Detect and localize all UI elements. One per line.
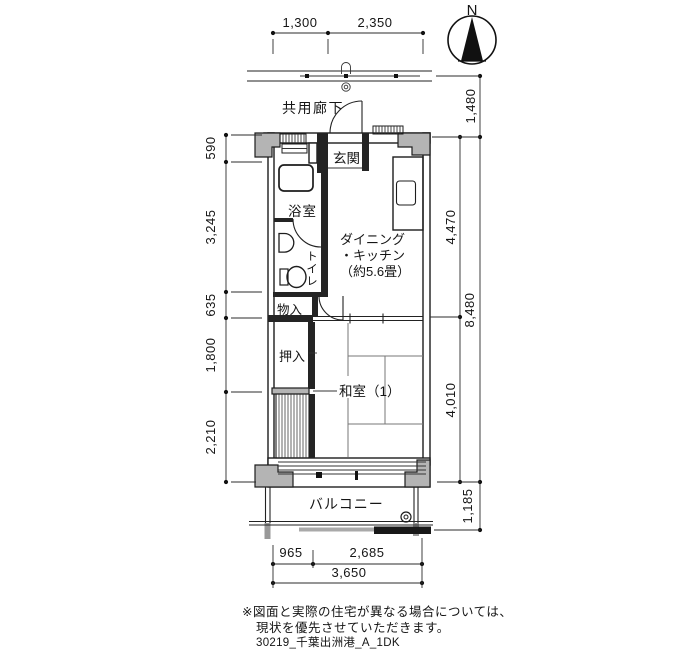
dim-top-2: 2,350 bbox=[345, 15, 405, 31]
dim-left-1: 590 bbox=[203, 118, 219, 178]
dim-right-5: 1,185 bbox=[460, 476, 476, 536]
dim-bottom-2: 2,685 bbox=[337, 545, 397, 561]
room-label-storage: 物入 bbox=[277, 299, 302, 318]
board-floor-strip bbox=[276, 394, 309, 458]
interior-walls bbox=[268, 133, 369, 458]
dim-left-2: 3,245 bbox=[203, 197, 219, 257]
dim-right-2: 4,470 bbox=[443, 197, 459, 257]
dk-line-2: ・キッチン bbox=[340, 248, 410, 264]
dk-line-1: ダイニング bbox=[340, 232, 410, 248]
corridor-lines bbox=[247, 63, 432, 92]
room-label-closet: 押入 bbox=[279, 346, 305, 365]
corridor-fitting-icon bbox=[342, 63, 351, 75]
room-label-corridor: 共用廊下 bbox=[282, 98, 344, 118]
dim-left-4: 1,800 bbox=[203, 325, 219, 385]
balcony-panel-light bbox=[299, 528, 374, 532]
room-label-bathroom: 浴室 bbox=[288, 200, 317, 220]
kitchen-counter-icon bbox=[393, 157, 423, 230]
balcony-divider-panel bbox=[374, 527, 431, 535]
dim-right-3: 8,480 bbox=[462, 280, 478, 340]
room-label-balcony: バルコニー bbox=[309, 494, 384, 514]
dim-right-1: 1,480 bbox=[463, 76, 479, 136]
sliding-partition bbox=[313, 314, 423, 324]
north-compass-icon bbox=[448, 16, 496, 64]
corridor-drain-icon bbox=[342, 83, 350, 91]
dim-left-5: 2,210 bbox=[203, 407, 219, 467]
dim-bottom-3: 3,650 bbox=[319, 565, 379, 581]
washbasin-icon bbox=[279, 234, 294, 253]
drain-icon bbox=[401, 512, 411, 522]
dim-bottom-1: 965 bbox=[261, 545, 321, 561]
room-label-toilet: トイレ bbox=[303, 250, 319, 288]
north-label: N bbox=[463, 2, 481, 19]
floor-plan-page: N 1,300 2,350 590 3,245 635 1,800 2,210 … bbox=[0, 0, 700, 650]
bathtub-icon bbox=[279, 165, 313, 191]
kitchen-sink-icon bbox=[397, 181, 416, 205]
room-label-dining-kitchen: ダイニング ・キッチン （約5.6畳） bbox=[340, 232, 410, 280]
dim-top-1: 1,300 bbox=[270, 15, 330, 31]
room-label-japanese-room: 和室（1） bbox=[339, 380, 401, 400]
room-label-entrance: 玄関 bbox=[333, 147, 360, 167]
toilet-door-arc bbox=[293, 219, 321, 247]
drawing-code: 30219_千葉出洲港_A_1DK bbox=[256, 634, 400, 650]
dim-right-4: 4,010 bbox=[443, 370, 459, 430]
dk-line-3: （約5.6畳） bbox=[340, 264, 410, 280]
